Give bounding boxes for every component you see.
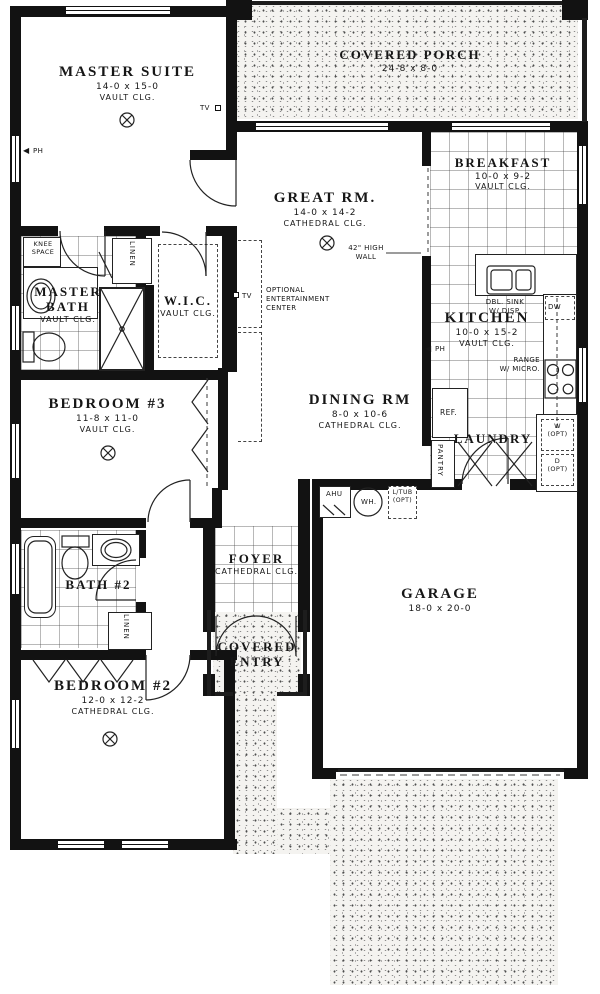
label-bedroom2: BEDROOM #2 12-0 x 12-2 CATHEDRAL CLG. <box>28 678 198 716</box>
floor-plan: COVERED PORCH 24-8 x 8-0 MASTER SUITE 14… <box>0 0 600 994</box>
ltub-line1: L/TUB <box>389 489 416 497</box>
washer-line2: (OPT) <box>542 430 573 438</box>
knee-space-label: KNEE SPACE <box>26 240 60 256</box>
room-name: GARAGE <box>370 586 510 603</box>
ahu-hatch <box>323 505 345 515</box>
ahu-label: AHU <box>326 490 342 499</box>
label-dining-rm: DINING RM 8-0 x 10-6 CATHEDRAL CLG. <box>290 392 430 430</box>
room-clg: VAULT CLG. <box>432 182 574 191</box>
knee-line2: SPACE <box>26 248 60 256</box>
master-tv-icon <box>215 105 221 111</box>
dw-label: DW <box>548 303 561 312</box>
ceiling-fan-great <box>320 236 334 250</box>
label-covered-porch: COVERED PORCH 24-8 x 8-0 <box>300 48 520 74</box>
room-clg: CATHEDRAL CLG. <box>28 707 198 716</box>
bath2-sink-icon <box>101 539 131 561</box>
dbl-sink-label: DBL. SINK W/ DISP. <box>468 298 542 316</box>
label-kitchen: KITCHEN 10-0 x 15-2 VAULT CLG. <box>428 310 546 348</box>
high-wall-label: 42" HIGH WALL <box>346 244 386 262</box>
wh-label: WH. <box>361 498 377 507</box>
dbl-sink-line2: W/ DISP. <box>468 307 542 316</box>
room-dim: 14-0 x 14-2 <box>240 208 410 218</box>
room-clg: VAULT CLG. <box>25 425 190 434</box>
room-name: FOYER <box>214 552 299 567</box>
master-linen-label: LINEN <box>128 241 136 283</box>
ltub-line2: (OPT) <box>389 497 416 505</box>
great-tv-label: TV <box>242 292 252 301</box>
room-clg: VAULT CLG. <box>428 339 546 348</box>
room-dim: 10-0 x 9-2 <box>432 172 574 182</box>
label-bath2: BATH #2 <box>56 578 141 593</box>
label-wic: W.I.C. VAULT CLG. <box>157 294 219 318</box>
range-line2: W/ MICRO. <box>494 365 540 374</box>
range-line1: RANGE <box>494 356 540 365</box>
room-name: BEDROOM #3 <box>25 396 190 413</box>
label-master-suite: MASTER SUITE 14-0 x 15-0 VAULT CLG. <box>40 64 215 102</box>
room-dim: 10-0 x 15-2 <box>428 328 546 338</box>
room-name: W.I.C. <box>157 294 219 309</box>
bath2-linen-label: LINEN <box>122 614 130 650</box>
room-name: MASTER BATH <box>32 285 104 315</box>
dryer-line2: (OPT) <box>542 465 573 473</box>
room-name: MASTER SUITE <box>40 64 215 81</box>
laundry-bifold <box>458 442 532 486</box>
master-ph-label: PH <box>33 147 43 156</box>
room-name: BREAKFAST <box>432 156 574 171</box>
label-master-bath: MASTER BATH VAULT CLG. <box>32 285 104 324</box>
label-laundry: LAUNDRY <box>448 432 538 447</box>
washer-line1: W <box>542 422 573 430</box>
room-name: LAUNDRY <box>448 432 538 447</box>
room-clg: CATHEDRAL CLG. <box>214 567 299 576</box>
room-clg: VAULT CLG. <box>32 315 104 324</box>
tub-inner <box>28 541 52 613</box>
bed3-door <box>148 480 190 522</box>
great-tv-icon <box>233 292 239 298</box>
wic-door <box>162 232 206 276</box>
room-clg: CATHEDRAL CLG. <box>290 421 430 430</box>
range-label: RANGE W/ MICRO. <box>494 356 540 374</box>
opt-line3: CENTER <box>266 304 330 313</box>
room-dim: 8-0 x 10-6 <box>290 410 430 420</box>
opt-line2: ENTERTAINMENT <box>266 295 330 304</box>
ltub-label: L/TUB (OPT) <box>389 489 416 505</box>
range-icon <box>545 360 576 398</box>
room-dim: 24-8 x 8-0 <box>300 64 520 74</box>
room-name: DINING RM <box>290 392 430 409</box>
ceiling-fan-master <box>120 113 134 127</box>
master-ph-arrow: ◀ <box>23 146 30 156</box>
shower-icon <box>101 289 143 369</box>
ceiling-fan-bed2 <box>103 732 117 746</box>
room-clg: VAULT CLG. <box>40 93 215 102</box>
bed3-closet-bifold <box>192 380 208 472</box>
dbl-sink-line1: DBL. SINK <box>468 298 542 307</box>
kitchen-ph-label: PH <box>435 345 445 354</box>
bath2-toilet-icon <box>62 536 89 579</box>
label-great-rm: GREAT RM. 14-0 x 14-2 CATHEDRAL CLG. <box>240 190 410 228</box>
room-dim: 18-0 x 20-0 <box>370 604 510 614</box>
opt-ent-center-label: OPTIONAL ENTERTAINMENT CENTER <box>266 286 330 312</box>
master-bath-door <box>60 231 105 276</box>
room-name: COVERED PORCH <box>300 48 520 63</box>
room-name: COVERED ENTRY <box>217 640 297 670</box>
room-name: GREAT RM. <box>240 190 410 207</box>
label-breakfast: BREAKFAST 10-0 x 9-2 VAULT CLG. <box>432 156 574 191</box>
room-clg: VAULT CLG. <box>157 309 219 318</box>
label-garage: GARAGE 18-0 x 20-0 <box>370 586 510 615</box>
kitchen-dbl-sink-icon <box>487 266 535 294</box>
opt-line1: OPTIONAL <box>266 286 330 295</box>
fixtures-overlay <box>0 0 600 994</box>
ref-label: REF. <box>440 408 457 417</box>
pantry-label: PANTRY <box>436 444 444 486</box>
label-foyer: FOYER CATHEDRAL CLG. <box>214 552 299 576</box>
room-clg: CATHEDRAL CLG. <box>240 219 410 228</box>
knee-line1: KNEE <box>26 240 60 248</box>
room-name: BEDROOM #2 <box>28 678 198 695</box>
master-tv-label: TV <box>200 104 210 113</box>
room-name: BATH #2 <box>56 578 141 593</box>
kitchen-ph-arrow: ◀ <box>425 344 432 354</box>
master-toilet-icon <box>23 332 65 362</box>
high-wall-line1: 42" HIGH <box>346 244 386 253</box>
dryer-label: D (OPT) <box>542 457 573 473</box>
label-bedroom3: BEDROOM #3 11-8 x 11-0 VAULT CLG. <box>25 396 190 434</box>
room-dim: 12-0 x 12-2 <box>28 696 198 706</box>
label-covered-entry: COVERED ENTRY <box>217 640 297 670</box>
high-wall-line2: WALL <box>346 253 386 262</box>
room-dim: 11-8 x 11-0 <box>25 414 190 424</box>
ceiling-fan-bed3 <box>101 446 115 460</box>
washer-label: W (OPT) <box>542 422 573 438</box>
dryer-line1: D <box>542 457 573 465</box>
master-entry-door <box>190 160 236 206</box>
room-dim: 14-0 x 15-0 <box>40 82 215 92</box>
